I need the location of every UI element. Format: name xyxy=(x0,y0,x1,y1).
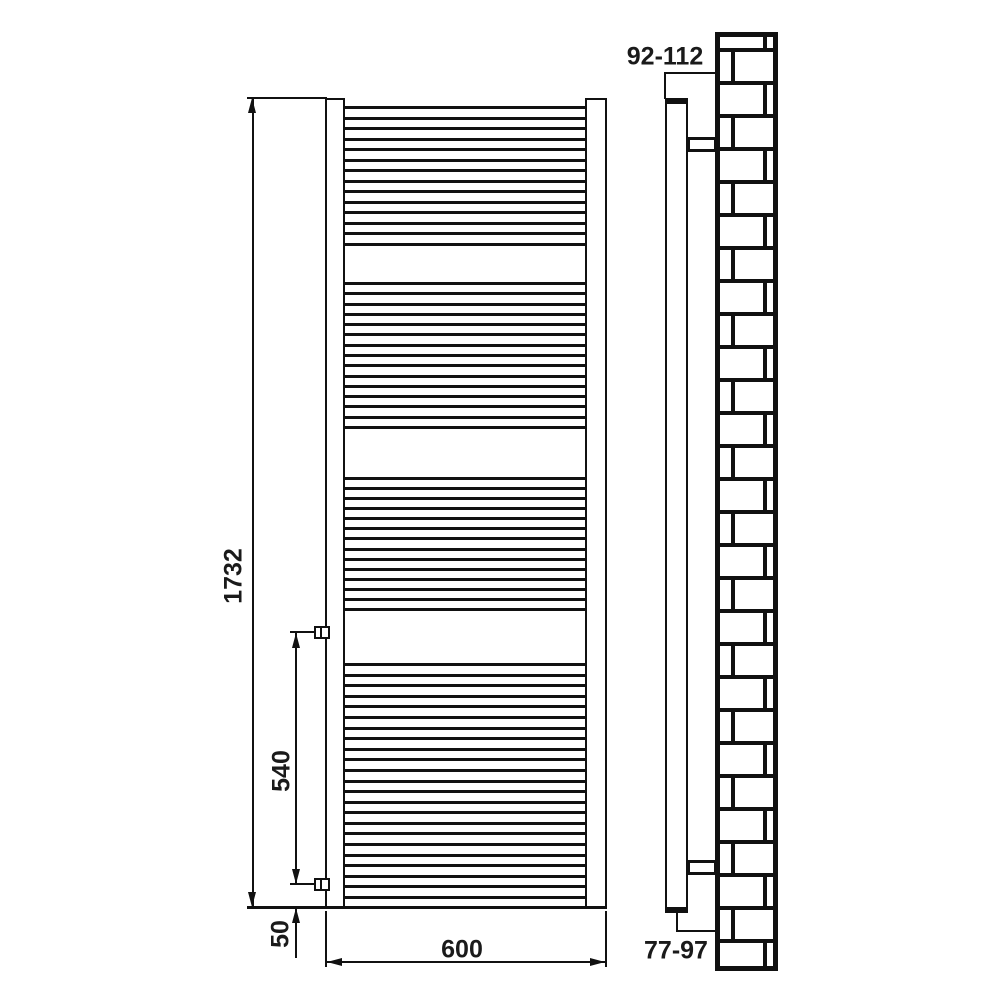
brick-head-joint xyxy=(763,479,767,512)
tube-bar xyxy=(345,598,585,601)
tube-bar xyxy=(345,832,585,835)
tube-bar xyxy=(345,232,585,235)
brick-mortar-line xyxy=(715,444,778,448)
tube-bar xyxy=(345,748,585,751)
tube-bar xyxy=(345,364,585,367)
dim-wall-top-hline xyxy=(664,72,717,74)
tube-bar xyxy=(345,663,585,666)
dim-height-ext-top xyxy=(247,97,327,99)
dim-spacing-arrow-bottom xyxy=(292,869,300,884)
brick-mortar-line xyxy=(715,114,778,118)
dim-wall-top-label: 92-112 xyxy=(627,45,703,70)
brick-mortar-line xyxy=(715,873,778,877)
brick-head-joint xyxy=(763,677,767,710)
tube-bar xyxy=(345,180,585,183)
tube-bar xyxy=(345,395,585,398)
wall-bracket-bottom xyxy=(687,860,717,875)
brick-mortar-line xyxy=(715,48,778,52)
dim-spacing-label: 540 xyxy=(270,750,295,792)
brick-head-joint xyxy=(763,215,767,248)
radiator-side-profile xyxy=(665,98,688,913)
brick-head-joint xyxy=(731,116,735,149)
brick-wall-edge-right xyxy=(773,32,778,971)
tube-bar xyxy=(345,780,585,783)
brick-head-joint xyxy=(731,578,735,611)
tube-bar xyxy=(345,222,585,225)
tube-bar xyxy=(345,548,585,551)
brick-head-joint xyxy=(731,50,735,83)
dim-width-ext-right xyxy=(605,911,607,967)
brick-mortar-line xyxy=(715,609,778,613)
tube-bar xyxy=(345,159,585,162)
brick-mortar-line xyxy=(715,180,778,184)
tube-bar xyxy=(345,517,585,520)
tube-bar xyxy=(345,527,585,530)
brick-head-joint xyxy=(731,380,735,413)
tube-bar xyxy=(345,758,585,761)
tube-bar xyxy=(345,375,585,378)
tube-bar xyxy=(345,811,585,814)
dim-height-arrow-top xyxy=(248,98,256,113)
dim-wall-bottom-hline xyxy=(676,930,717,932)
tube-bar xyxy=(345,790,585,793)
tube-bar xyxy=(345,243,585,246)
tube-bar xyxy=(345,292,585,295)
left-rail xyxy=(325,98,345,908)
tube-bar xyxy=(345,801,585,804)
brick-wall-edge-left xyxy=(715,32,720,971)
valve-fitting-bottom xyxy=(314,878,330,891)
tube-bar xyxy=(345,674,585,677)
tube-bar xyxy=(345,385,585,388)
valve-fitting-line xyxy=(320,879,322,890)
dim-wall-top-vline xyxy=(664,72,666,99)
tube-bar xyxy=(345,487,585,490)
tube-bar xyxy=(345,169,585,172)
dim-height-arrow-bottom xyxy=(248,892,256,907)
tube-group-2 xyxy=(345,282,585,429)
brick-head-joint xyxy=(763,545,767,578)
tube-bar xyxy=(345,588,585,591)
tube-bar xyxy=(345,333,585,336)
tube-bar xyxy=(345,201,585,204)
tube-bar xyxy=(345,875,585,878)
tube-bar xyxy=(345,190,585,193)
radiator-side-top-cap xyxy=(665,98,688,104)
brick-mortar-line xyxy=(715,807,778,811)
bottom-baseline xyxy=(247,906,607,909)
brick-head-joint xyxy=(731,446,735,479)
brick-head-joint xyxy=(763,281,767,314)
tube-bar xyxy=(345,354,585,357)
tube-bar xyxy=(345,405,585,408)
brick-mortar-line xyxy=(715,708,778,712)
tube-bar xyxy=(345,695,585,698)
brick-mortar-line xyxy=(715,345,778,349)
brick-head-joint xyxy=(731,248,735,281)
tube-bar xyxy=(345,344,585,347)
tube-group-3 xyxy=(345,477,585,611)
brick-mortar-line xyxy=(715,939,778,943)
brick-head-joint xyxy=(731,710,735,743)
tube-bar xyxy=(345,885,585,888)
brick-mortar-line xyxy=(715,213,778,217)
right-rail xyxy=(585,98,607,908)
tube-bar xyxy=(345,313,585,316)
brick-head-joint xyxy=(763,611,767,644)
dim-height-line xyxy=(252,98,254,907)
brick-mortar-line xyxy=(715,312,778,316)
tube-bar xyxy=(345,769,585,772)
tube-bar xyxy=(345,477,585,480)
brick-mortar-line xyxy=(715,576,778,580)
brick-head-joint xyxy=(763,149,767,182)
tube-bar xyxy=(345,896,585,899)
brick-mortar-line xyxy=(715,510,778,514)
brick-head-joint xyxy=(763,413,767,446)
brick-mortar-line xyxy=(715,477,778,481)
tube-bar xyxy=(345,106,585,109)
tube-bar xyxy=(345,323,585,326)
brick-head-joint xyxy=(731,182,735,215)
brick-mortar-line xyxy=(715,774,778,778)
dim-offset-label: 50 xyxy=(269,920,294,948)
tube-bar xyxy=(345,705,585,708)
brick-mortar-line xyxy=(715,741,778,745)
brick-mortar-line xyxy=(715,147,778,151)
dim-wall-bottom-label: 77-97 xyxy=(644,939,708,964)
brick-head-joint xyxy=(731,776,735,809)
brick-head-joint xyxy=(731,644,735,677)
wall-bracket-top xyxy=(687,137,717,152)
tube-bar xyxy=(345,416,585,419)
brick-head-joint xyxy=(763,809,767,842)
brick-mortar-line xyxy=(715,246,778,250)
brick-head-joint xyxy=(763,83,767,116)
brick-head-joint xyxy=(763,875,767,908)
valve-fitting-line xyxy=(320,627,322,638)
tube-bar xyxy=(345,558,585,561)
brick-wall-edge-bottom xyxy=(715,966,778,971)
tube-bar xyxy=(345,716,585,719)
tube-bar xyxy=(345,864,585,867)
tube-bar xyxy=(345,426,585,429)
brick-mortar-line xyxy=(715,279,778,283)
brick-head-joint xyxy=(731,512,735,545)
tube-group-1 xyxy=(345,106,585,246)
brick-mortar-line xyxy=(715,411,778,415)
brick-mortar-line xyxy=(715,906,778,910)
tube-bar xyxy=(345,507,585,510)
dim-spacing-arrow-top xyxy=(292,633,300,648)
tube-bar xyxy=(345,497,585,500)
tube-bar xyxy=(345,127,585,130)
technical-drawing: 1732 540 50 600 92-112 xyxy=(0,0,1007,1007)
dim-width-label: 600 xyxy=(441,938,483,963)
tube-bar xyxy=(345,568,585,571)
brick-wall xyxy=(715,32,778,971)
brick-mortar-line xyxy=(715,543,778,547)
brick-head-joint xyxy=(763,743,767,776)
dim-width-arrow-left xyxy=(327,958,342,966)
tube-bar xyxy=(345,608,585,611)
tube-bar xyxy=(345,843,585,846)
tube-bar xyxy=(345,138,585,141)
brick-wall-edge-top xyxy=(715,32,778,37)
tube-bar xyxy=(345,854,585,857)
tube-bar xyxy=(345,822,585,825)
tube-bar xyxy=(345,727,585,730)
tube-bar xyxy=(345,282,585,285)
brick-mortar-line xyxy=(715,378,778,382)
tube-group-4 xyxy=(345,663,585,899)
valve-fitting-top xyxy=(314,626,330,639)
tube-bar xyxy=(345,684,585,687)
tube-bar xyxy=(345,737,585,740)
brick-mortar-line xyxy=(715,81,778,85)
brick-head-joint xyxy=(763,347,767,380)
tube-bar xyxy=(345,578,585,581)
brick-head-joint xyxy=(731,314,735,347)
tube-bar xyxy=(345,537,585,540)
brick-head-joint xyxy=(731,908,735,941)
brick-head-joint xyxy=(731,842,735,875)
brick-mortar-line xyxy=(715,840,778,844)
tube-bar xyxy=(345,148,585,151)
dim-width-arrow-right xyxy=(590,958,605,966)
tube-bar xyxy=(345,211,585,214)
dim-height-label: 1732 xyxy=(222,548,247,604)
brick-mortar-line xyxy=(715,642,778,646)
tube-bar xyxy=(345,117,585,120)
brick-mortar-line xyxy=(715,675,778,679)
tube-bar xyxy=(345,303,585,306)
brick-head-joint xyxy=(763,941,767,971)
